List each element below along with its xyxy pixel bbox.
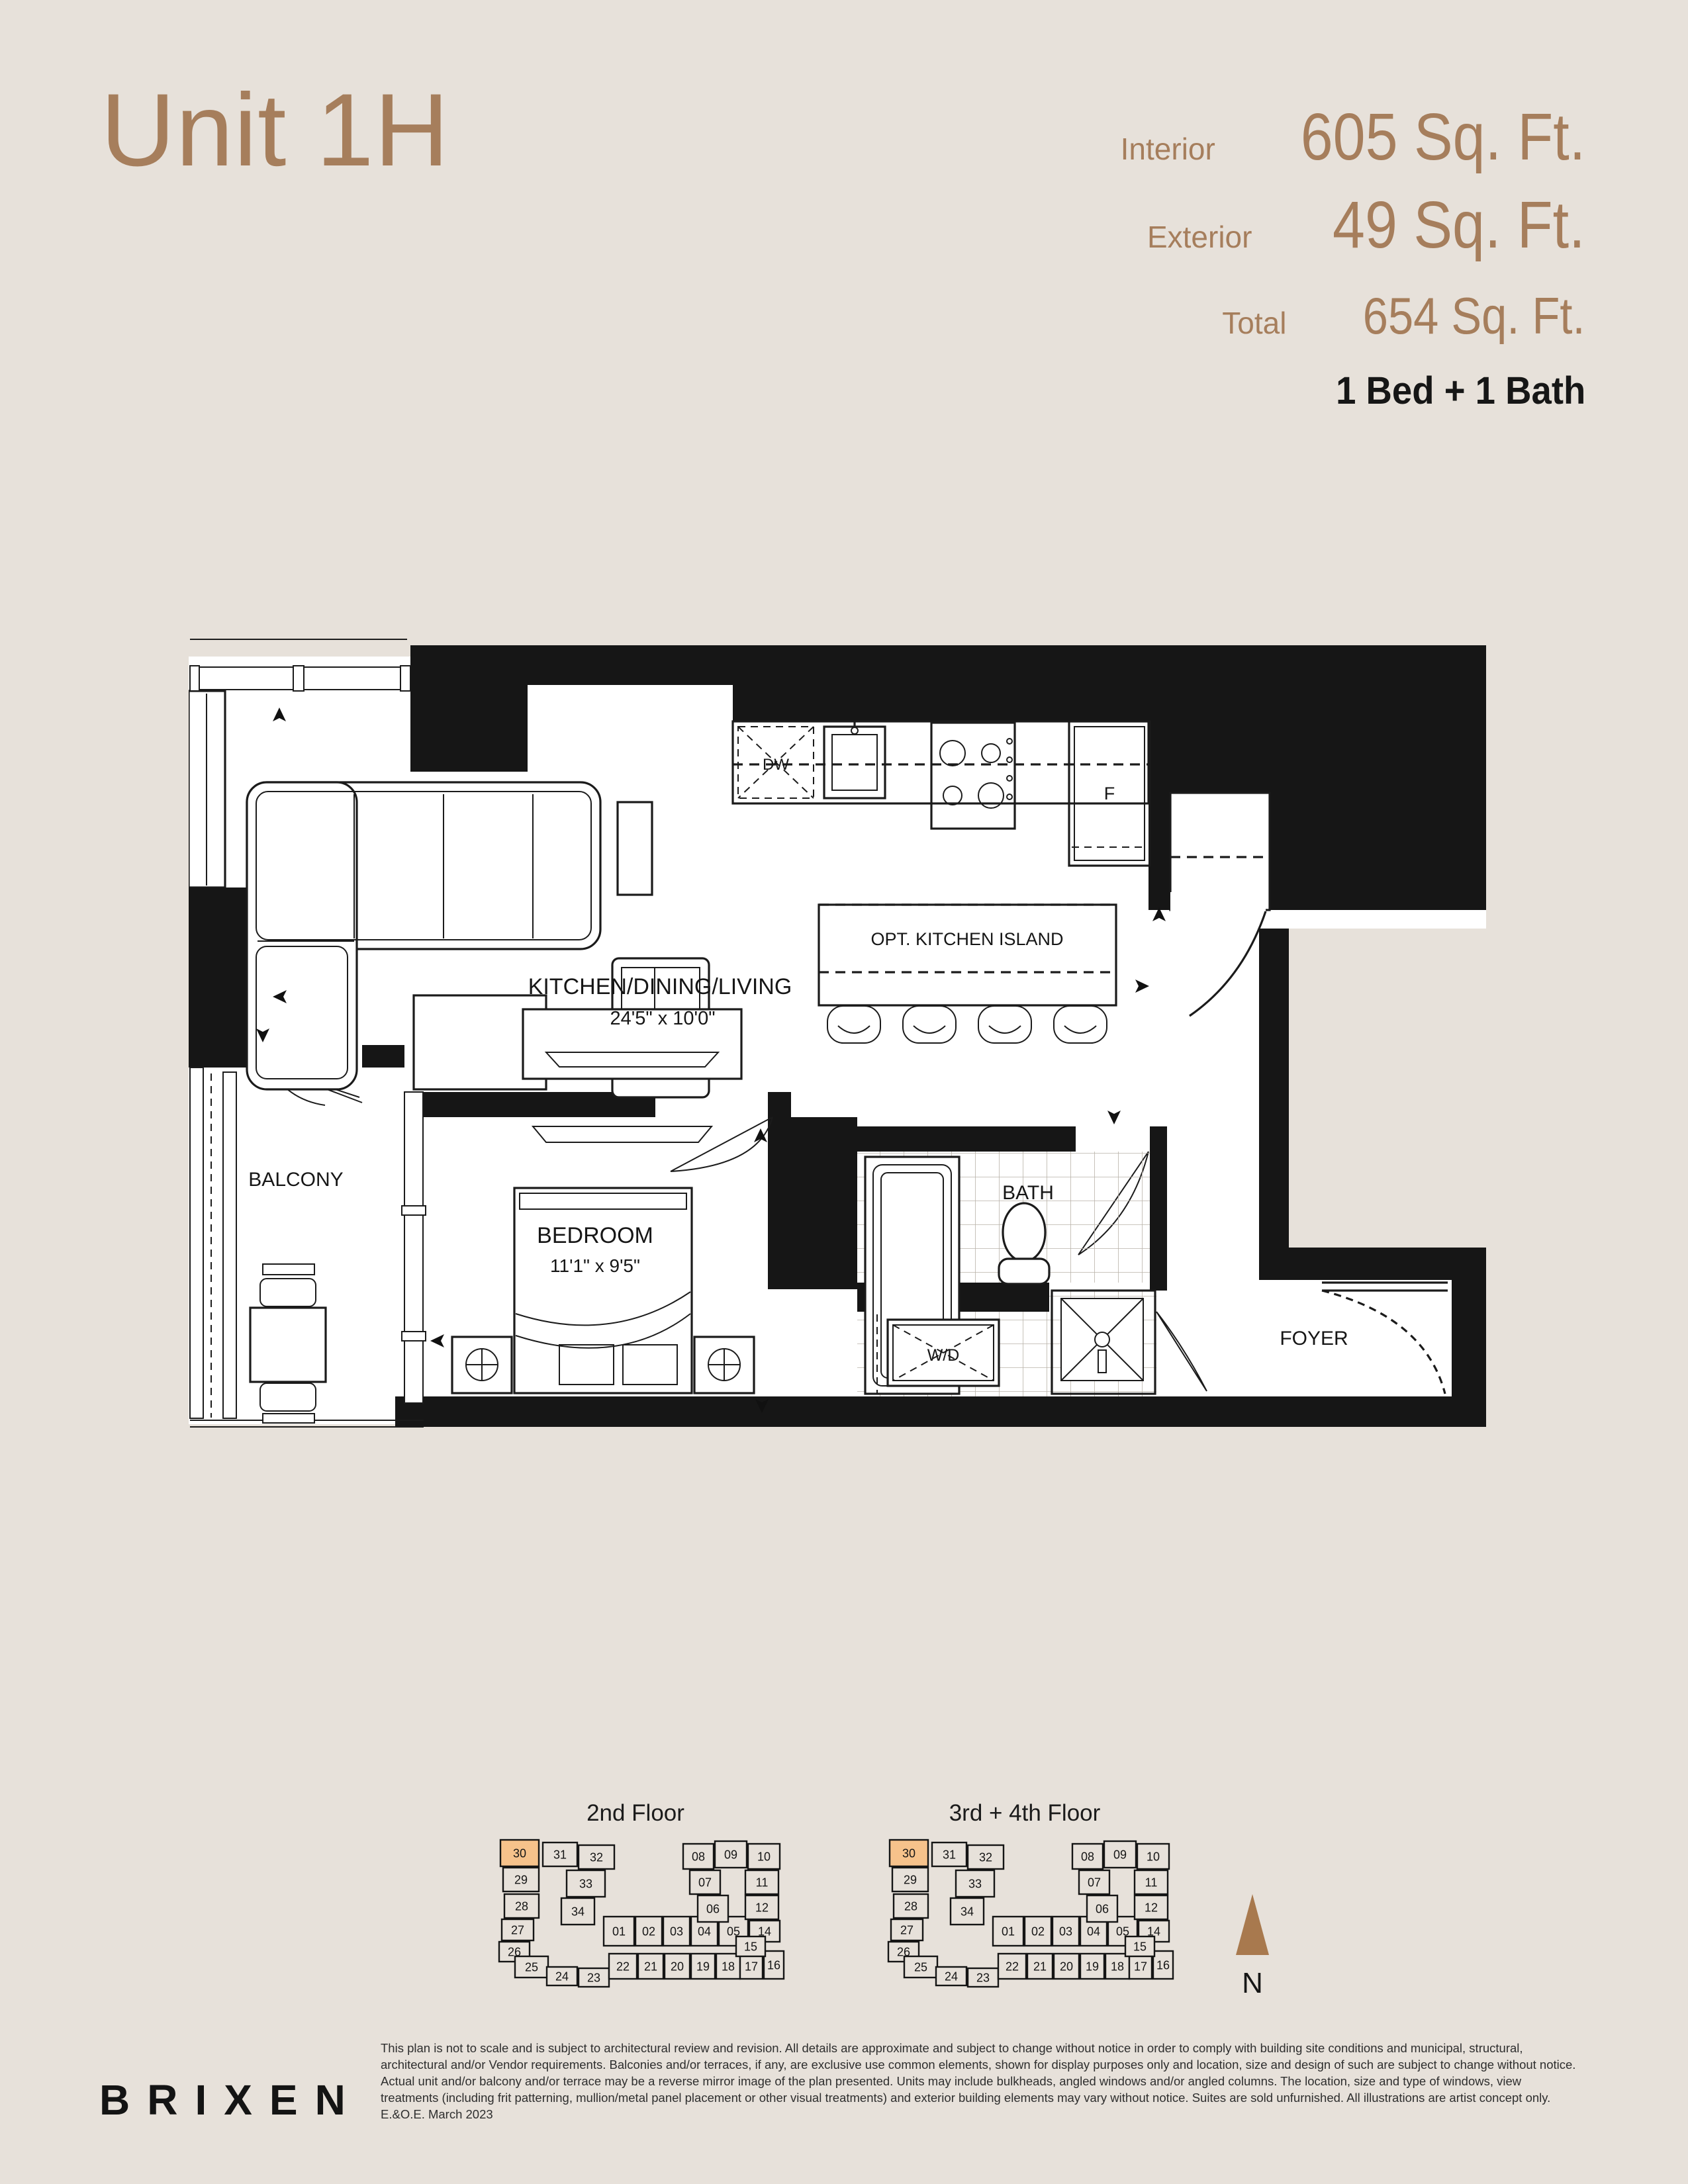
stat-row-exterior: Exterior 49 Sq. Ft. (1147, 175, 1585, 263)
svg-text:04: 04 (1087, 1925, 1100, 1938)
fridge-label: F (1104, 784, 1115, 803)
svg-text:27: 27 (900, 1924, 914, 1937)
svg-text:18: 18 (1111, 1960, 1124, 1974)
svg-text:20: 20 (1060, 1960, 1073, 1974)
wd-label: W/D (927, 1346, 960, 1365)
stat-label-total: Total (1222, 305, 1286, 341)
svg-text:28: 28 (515, 1900, 528, 1913)
disclaimer-eoe: E.&O.E. March 2023 (381, 2107, 493, 2121)
disclaimer: This plan is not to scale and is subject… (381, 2040, 1577, 2122)
svg-text:08: 08 (692, 1850, 705, 1864)
svg-text:18: 18 (722, 1960, 735, 1974)
svg-text:09: 09 (1113, 1848, 1127, 1862)
svg-text:28: 28 (904, 1900, 917, 1913)
shower (1052, 1291, 1155, 1394)
svg-text:33: 33 (968, 1878, 982, 1891)
svg-text:03: 03 (1059, 1925, 1072, 1938)
svg-text:34: 34 (961, 1905, 974, 1919)
svg-text:10: 10 (1147, 1850, 1160, 1864)
stat-label-exterior: Exterior (1147, 219, 1252, 255)
stat-value-total: 654 Sq. Ft. (1363, 286, 1585, 346)
kitchen-living-label: KITCHEN/DINING/LIVING (528, 974, 792, 999)
nightstand-right (694, 1337, 754, 1393)
svg-text:22: 22 (616, 1960, 630, 1974)
balcony-label: BALCONY (248, 1169, 343, 1191)
svg-text:34: 34 (571, 1905, 585, 1919)
area-stats: Interior 605 Sq. Ft. Exterior 49 Sq. Ft.… (1121, 99, 1585, 413)
svg-text:31: 31 (553, 1848, 567, 1862)
dishwasher-label: DW (763, 756, 789, 774)
svg-text:12: 12 (1145, 1901, 1158, 1915)
side-table (618, 802, 652, 895)
svg-text:15: 15 (1133, 1940, 1147, 1954)
toilet (999, 1203, 1049, 1284)
svg-text:15: 15 (744, 1940, 757, 1954)
stat-value-interior: 605 Sq. Ft. (1301, 99, 1585, 175)
bedroom-dims: 11'1" x 9'5" (550, 1255, 640, 1276)
svg-text:22: 22 (1006, 1960, 1019, 1974)
svg-text:16: 16 (1156, 1959, 1170, 1972)
keyplan-title-3rd-4th: 3rd + 4th Floor (875, 1800, 1174, 1827)
svg-text:23: 23 (587, 1972, 600, 1985)
svg-text:19: 19 (696, 1960, 710, 1974)
svg-text:25: 25 (525, 1961, 538, 1974)
compass: N (1221, 1894, 1284, 2000)
svg-text:07: 07 (698, 1876, 712, 1889)
svg-text:12: 12 (755, 1901, 769, 1915)
brixen-logo: BRIXEN (99, 2075, 363, 2124)
unit-type: 1 Bed + 1 Bath (1336, 369, 1585, 413)
svg-text:01: 01 (612, 1925, 626, 1938)
disclaimer-text: This plan is not to scale and is subject… (381, 2041, 1575, 2105)
svg-text:01: 01 (1002, 1925, 1015, 1938)
stat-value-exterior: 49 Sq. Ft. (1333, 187, 1585, 263)
nightstand-left (452, 1337, 512, 1393)
svg-text:03: 03 (670, 1925, 683, 1938)
svg-text:02: 02 (1031, 1925, 1045, 1938)
svg-text:17: 17 (745, 1960, 758, 1974)
svg-text:21: 21 (644, 1960, 657, 1974)
page-title: Unit 1H (101, 71, 449, 190)
bed (514, 1188, 692, 1393)
svg-text:02: 02 (642, 1925, 655, 1938)
stat-label-interior: Interior (1121, 131, 1215, 167)
bedroom-label: BEDROOM (537, 1223, 653, 1248)
svg-text:19: 19 (1086, 1960, 1099, 1974)
svg-text:21: 21 (1033, 1960, 1047, 1974)
svg-text:09: 09 (724, 1848, 737, 1862)
balcony-furniture (250, 1264, 326, 1423)
svg-text:25: 25 (914, 1961, 927, 1974)
svg-text:17: 17 (1134, 1960, 1147, 1974)
svg-text:29: 29 (514, 1874, 528, 1887)
svg-text:06: 06 (1096, 1903, 1109, 1916)
keyplan-title-2nd: 2nd Floor (486, 1800, 785, 1827)
svg-text:32: 32 (979, 1851, 992, 1864)
svg-text:11: 11 (1145, 1876, 1158, 1889)
svg-text:30: 30 (902, 1847, 915, 1860)
svg-text:04: 04 (698, 1925, 711, 1938)
compass-label: N (1221, 1967, 1284, 2000)
stat-row-total: Total 654 Sq. Ft. (1222, 263, 1585, 346)
svg-text:24: 24 (945, 1970, 958, 1983)
svg-text:32: 32 (590, 1851, 603, 1864)
svg-text:08: 08 (1081, 1850, 1094, 1864)
svg-text:10: 10 (757, 1850, 771, 1864)
floor-plan: DW F (189, 629, 1486, 1433)
svg-text:11: 11 (756, 1876, 769, 1889)
building-core-cutout (1289, 929, 1486, 1248)
svg-text:27: 27 (511, 1924, 524, 1937)
foyer-label: FOYER (1280, 1328, 1348, 1349)
svg-text:31: 31 (943, 1848, 956, 1862)
svg-text:06: 06 (706, 1903, 720, 1916)
svg-text:29: 29 (904, 1874, 917, 1887)
island-label: OPT. KITCHEN ISLAND (870, 929, 1063, 949)
bath-label: BATH (1002, 1182, 1054, 1204)
svg-text:23: 23 (976, 1972, 990, 1985)
kitchen-living-dims: 24'5" x 10'0" (610, 1008, 715, 1029)
svg-text:16: 16 (767, 1959, 780, 1972)
floorplan-page: Unit 1H Interior 605 Sq. Ft. Exterior 49… (0, 0, 1688, 2184)
svg-text:07: 07 (1088, 1876, 1101, 1889)
washer-dryer: W/D (877, 1314, 999, 1394)
keyplan-2nd-floor: 3031322933283427262524230102030405222120… (486, 1835, 785, 1989)
svg-text:24: 24 (555, 1970, 569, 1983)
north-arrow-icon (1236, 1894, 1269, 1955)
svg-text:33: 33 (579, 1878, 592, 1891)
keyplan-3rd-4th-floor: 3031322933283427262524230102030405222120… (875, 1835, 1174, 1989)
svg-text:20: 20 (671, 1960, 684, 1974)
stat-row-interior: Interior 605 Sq. Ft. (1121, 99, 1585, 175)
floor-plan-drawing: DW F (189, 629, 1486, 1433)
svg-text:30: 30 (513, 1847, 526, 1860)
